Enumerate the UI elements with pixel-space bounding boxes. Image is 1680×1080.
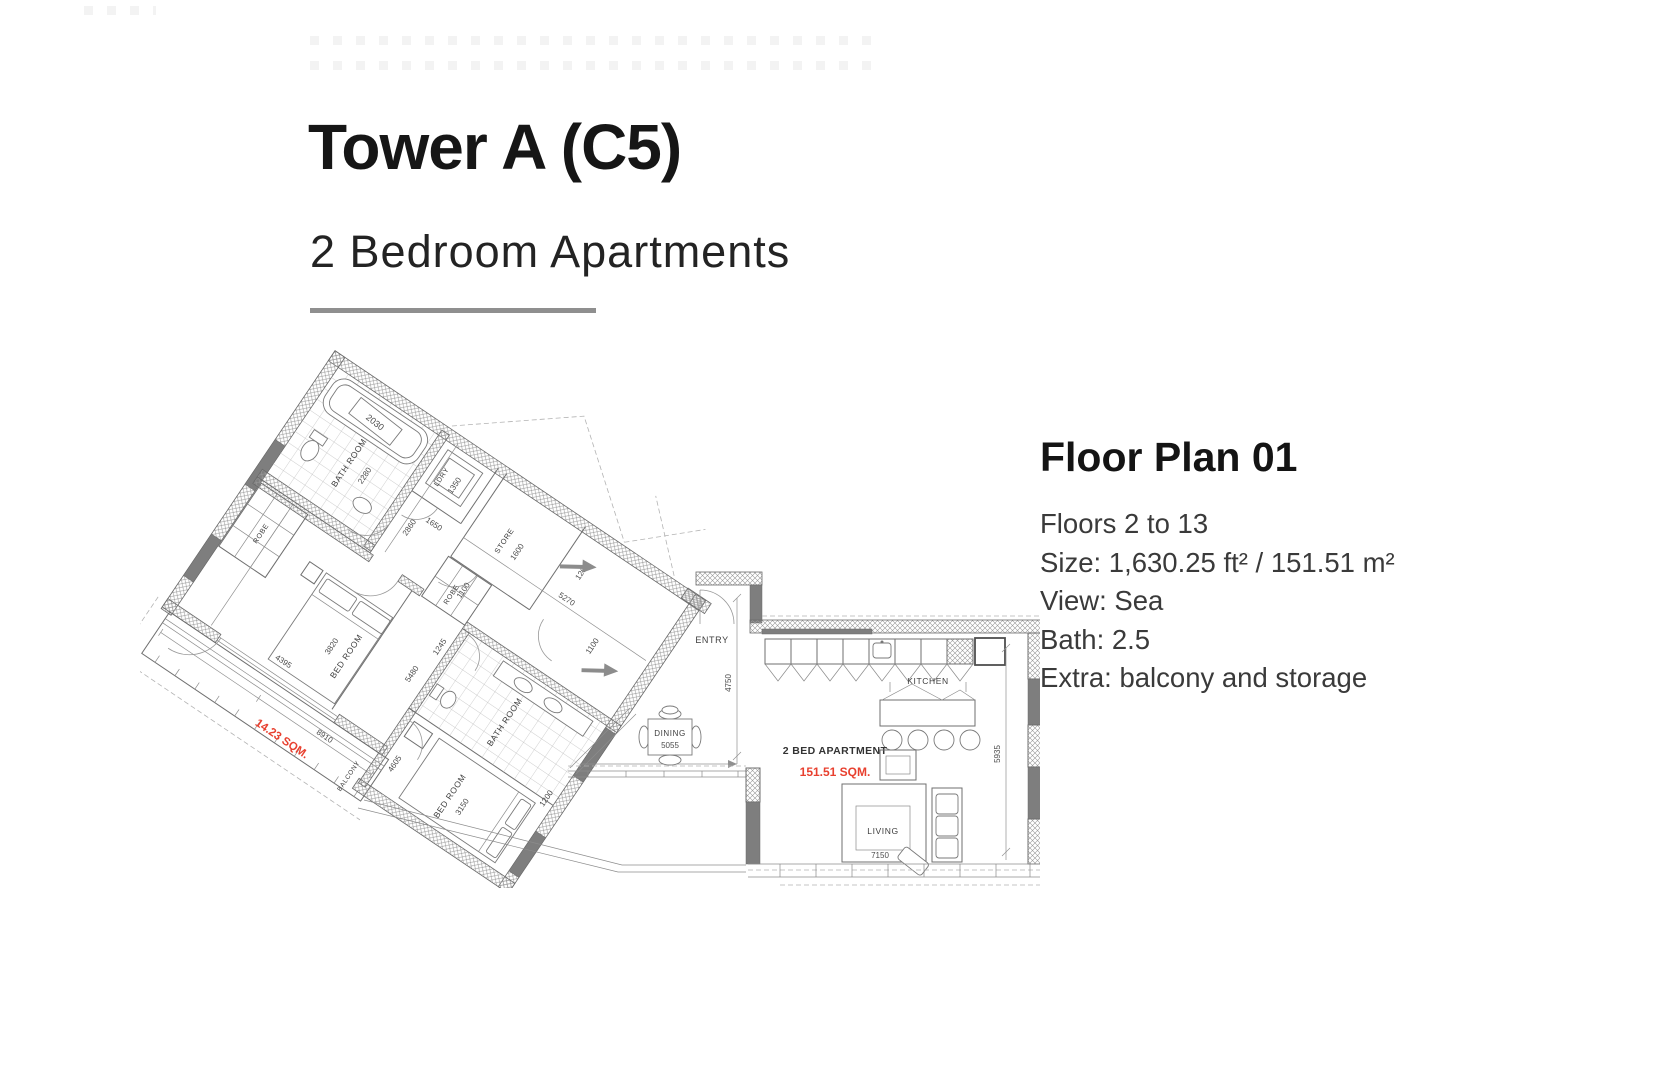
info-size: Size: 1,630.25 ft² / 151.51 m² [1040,544,1395,583]
title-divider [310,308,596,313]
page-title: Tower A (C5) [308,110,681,184]
dim-5480: 5480 [403,664,421,684]
bottom-window-band [748,864,1040,885]
watermark-dots [310,36,876,45]
bedroom1: BED ROOM 3820 4395 [252,534,412,703]
dim-5270: 5270 [557,591,577,609]
dim-1100a: 1100 [455,580,472,600]
apartment-label: 2 BED APARTMENT [783,745,888,757]
floor-plan-drawing: 8910 14.23 SQM. BALCONY [140,348,1040,888]
kitchen: KITCHEN [750,616,1040,750]
right-wall-dim: 5935 [993,745,1002,763]
dim-1100b: 1100 [584,636,601,656]
dim-2860: 2860 [401,517,419,537]
info-view: View: Sea [1040,582,1395,621]
apartment-area-label: 151.51 SQM. [800,765,871,779]
dining-window-band [568,766,760,864]
dining-dim: 5055 [661,741,679,750]
dining: DINING 5055 [639,706,701,765]
wing-group: 8910 14.23 SQM. BALCONY [140,348,753,888]
floor-plan-heading: Floor Plan 01 [1040,434,1395,481]
watermark-dots [84,6,156,15]
info-bath: Bath: 2.5 [1040,621,1395,660]
entry-label: ENTRY [695,635,728,645]
balcony-length-dim: 8910 [315,728,335,746]
store-dim: 1600 [508,542,526,562]
main-section: ENTRY 4750 KITCHEN [568,572,1040,885]
info-extra: Extra: balcony and storage [1040,659,1395,698]
right-wall: 5935 [993,633,1040,864]
page-subtitle: 2 Bedroom Apartments [310,226,790,278]
living-dim: 7150 [871,851,889,860]
info-floors: Floors 2 to 13 [1040,505,1395,544]
bedroom2-width-dim: 4605 [386,753,404,773]
door-swing-arrows [519,551,659,687]
dim-1650: 1650 [424,515,444,533]
bathroom1: 2030 BATH ROOM 2280 [266,367,446,547]
balcony-area-label: 14.23 SQM. [253,717,311,761]
dining-label: DINING [654,729,686,738]
living-label: LIVING [867,826,898,836]
entry-dim: 4750 [724,674,733,692]
watermark-dots [310,61,876,70]
info-panel: Floor Plan 01 Floors 2 to 13 Size: 1,630… [1040,434,1395,698]
